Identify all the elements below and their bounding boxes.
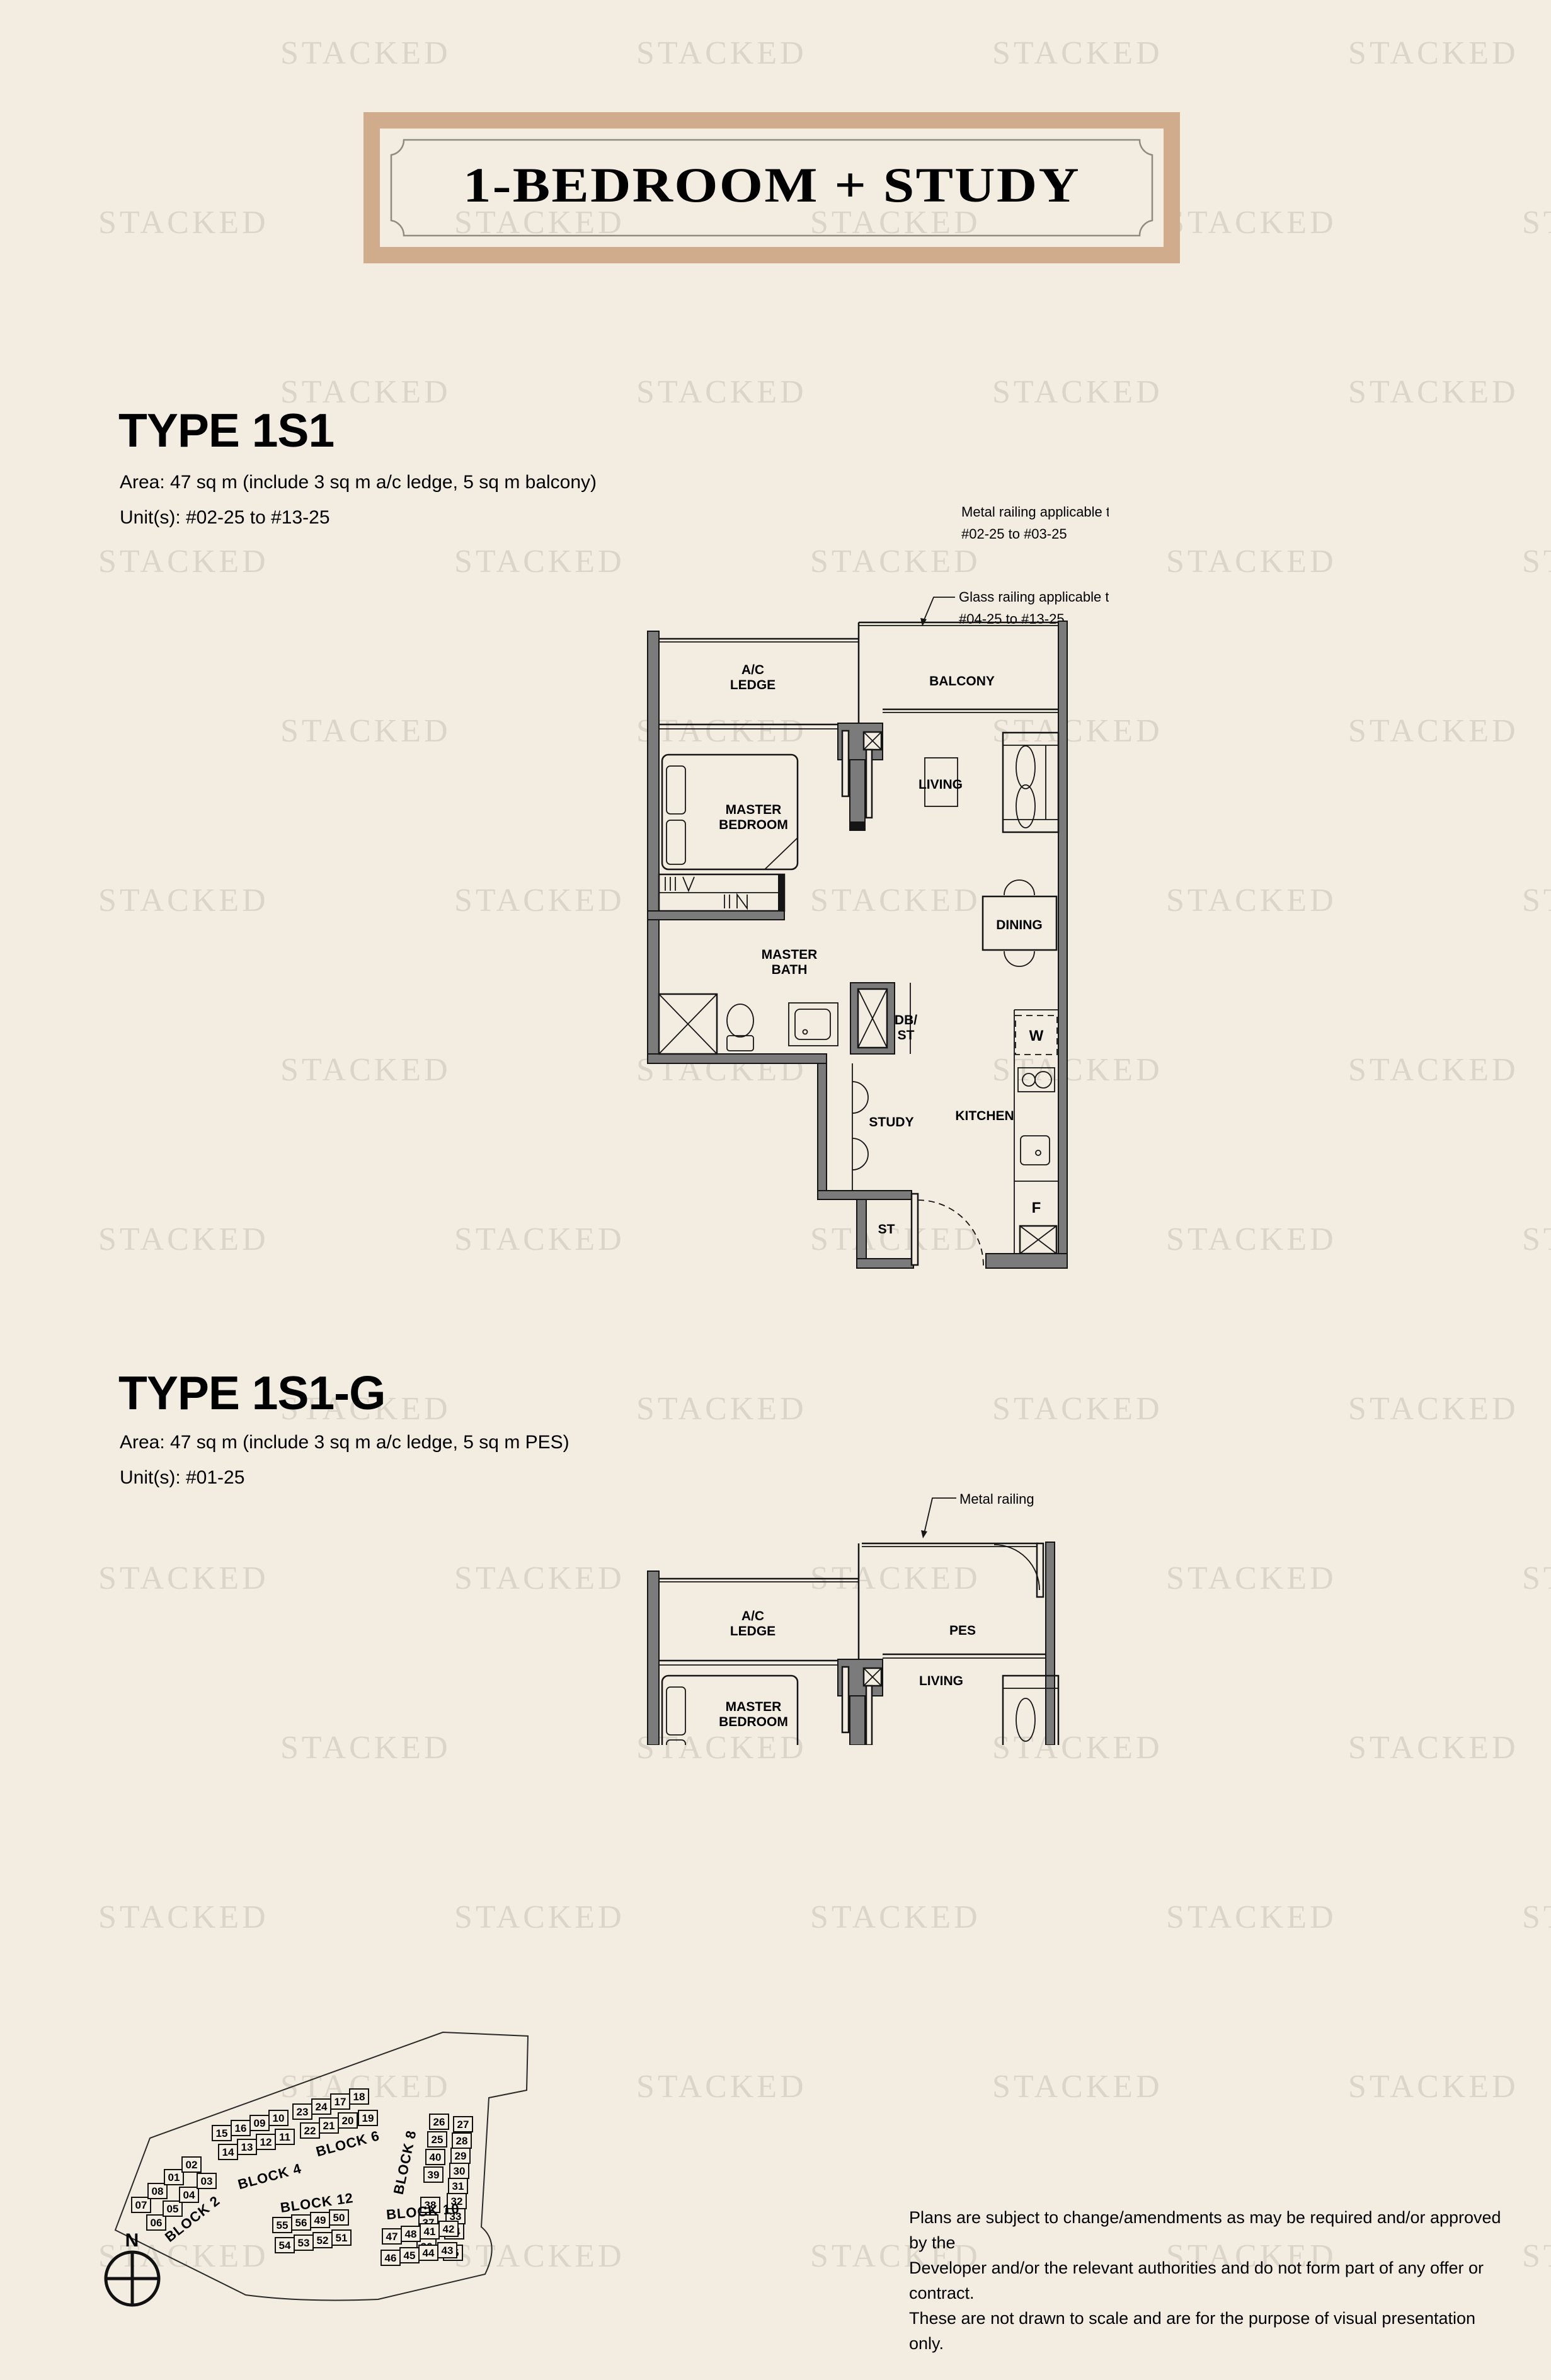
watermark: STACKED [636,2068,807,2105]
label-living: LIVING [919,777,963,792]
watermark: STACKED [1522,1560,1551,1597]
sofa-cushion-g [1016,1698,1035,1741]
compass-label: N [125,2230,140,2251]
watermark: STACKED [454,1560,625,1597]
site-plan: N 07 08 01 02 06 05 04 03 BLOCK 2 15 16 … [88,2003,567,2356]
svg-text:43: 43 [442,2245,454,2257]
wall-study-left [818,1063,827,1199]
study-chair-1 [852,1082,868,1113]
wall-end-cap [850,821,865,830]
watermark: STACKED [1166,1560,1337,1597]
note-glass-railing: Glass railing applicable to#04-25 to #13… [959,589,1109,627]
svg-text:41: 41 [424,2226,436,2238]
watermark: STACKED [98,1899,269,1936]
wall-left [648,631,659,1063]
toilet-bowl [727,1004,753,1037]
svg-text:26: 26 [433,2116,445,2128]
site-block-12: 55 56 49 50 54 53 52 51 BLOCK 12 [273,2190,355,2253]
label-kitchen: KITCHEN [955,1109,1014,1123]
watermark: STACKED [1348,35,1519,72]
disclaimer-line-1: Plans are subject to change/amendments a… [909,2205,1514,2255]
site-block-10: 47 48 41 42 46 45 44 43 BLOCK 10 [381,2200,461,2265]
block-4-label: BLOCK 4 [236,2160,304,2192]
wall-bath-bottom [648,1054,827,1063]
svg-text:08: 08 [152,2185,164,2197]
watermark: STACKED [454,1221,625,1258]
wardrobe-end [778,874,784,911]
site-block-4: 15 16 09 10 14 13 12 11 BLOCK 4 [212,2110,303,2192]
svg-text:27: 27 [457,2119,469,2131]
watermark: STACKED [98,882,269,919]
watermark: STACKED [992,1390,1163,1427]
entry-door-leaf [912,1194,918,1265]
svg-text:40: 40 [430,2151,442,2163]
floor-plan-1s1g: Metal railing A/CLEDGE PES MASTERBED [630,1468,1109,1745]
wall-kitchen-bottom [986,1254,1067,1268]
sliding-door-panel-g1 [842,1667,849,1732]
toilet-tank [727,1036,753,1051]
kitchen-sink-drain [1036,1150,1041,1155]
watermark: STACKED [1348,1729,1519,1766]
disclaimer-line-3: These are not drawn to scale and are for… [909,2306,1514,2356]
type-1s1-units: Unit(s): #02-25 to #13-25 [120,500,597,535]
blanket-fold [765,838,798,869]
watermark: STACKED [1522,2238,1551,2275]
label-dining: DINING [996,918,1043,932]
sofa-cushion-2 [1016,785,1035,828]
watermark: STACKED [1166,882,1337,919]
watermark: STACKED [454,882,625,919]
watermark: STACKED [1348,374,1519,411]
svg-text:51: 51 [336,2232,348,2244]
pillow-g2 [667,1740,685,1745]
site-block-2: 07 08 01 02 06 05 04 03 BLOCK 2 [132,2157,223,2245]
watermark: STACKED [98,1560,269,1597]
type-1s1-meta: Area: 47 sq m (include 3 sq m a/c ledge,… [120,465,597,535]
svg-text:25: 25 [432,2134,444,2146]
watermark: STACKED [1166,1899,1337,1936]
svg-text:21: 21 [323,2120,335,2132]
svg-text:04: 04 [183,2189,195,2201]
type-1s1-heading: TYPE 1S1 [118,403,334,457]
basin [795,1009,830,1039]
watermark: STACKED [280,1051,451,1089]
page: STACKEDSTACKEDSTACKEDSTACKEDSTACKEDSTACK… [0,0,1551,2380]
type-1s1g-units: Unit(s): #01-25 [120,1460,569,1496]
floor-plan-1s1: Metal railing applicable to#02-25 to #03… [630,466,1109,1279]
svg-text:14: 14 [222,2146,234,2158]
svg-text:29: 29 [455,2150,467,2162]
watermark: STACKED [98,204,269,241]
svg-text:50: 50 [333,2212,345,2224]
watermark: STACKED [1166,204,1337,241]
svg-text:16: 16 [235,2122,247,2134]
type-1s1g-heading: TYPE 1S1-G [118,1366,385,1420]
sofa [1003,733,1058,832]
type-1s1g-meta: Area: 47 sq m (include 3 sq m a/c ledge,… [120,1425,569,1496]
svg-text:47: 47 [386,2231,398,2243]
watermark: STACKED [454,543,625,580]
pillow-1 [667,766,685,814]
watermark: STACKED [1522,1899,1551,1936]
pes-gate-leaf [1037,1543,1043,1597]
pes-gate-swing [994,1545,1039,1590]
svg-text:01: 01 [168,2171,180,2183]
watermark: STACKED [992,2068,1163,2105]
watermark: STACKED [1522,1221,1551,1258]
svg-text:02: 02 [186,2159,198,2171]
sliding-door-panel-g2 [866,1686,872,1745]
wall-right-g [1046,1542,1055,1745]
dining-chair-bottom [1004,951,1034,966]
type-1s1-area: Area: 47 sq m (include 3 sq m a/c ledge,… [120,465,597,500]
svg-text:17: 17 [335,2096,346,2108]
svg-text:44: 44 [423,2247,435,2259]
svg-text:03: 03 [201,2175,213,2187]
label-balcony: BALCONY [929,674,995,689]
watermark: STACKED [1348,712,1519,750]
wall-right [1058,621,1067,1268]
svg-text:07: 07 [135,2199,147,2211]
note-metal-railing-g: Metal railing [959,1491,1034,1507]
label-study: STUDY [869,1115,913,1130]
svg-text:10: 10 [273,2112,285,2124]
wall-study-bottom [818,1191,912,1199]
svg-text:45: 45 [404,2250,416,2262]
block-8-label: BLOCK 8 [391,2129,420,2195]
svg-text:09: 09 [254,2117,266,2129]
svg-text:42: 42 [443,2223,455,2235]
label-master-bath: MASTERBATH [762,947,818,977]
wall-left-g [648,1571,659,1745]
metal-railing-leader [924,1498,956,1533]
label-db-st: DB/ST [895,1013,917,1043]
watermark: STACKED [1166,543,1337,580]
watermark: STACKED [98,543,269,580]
dining-chair-top [1004,880,1034,895]
svg-text:52: 52 [317,2234,329,2246]
watermark: STACKED [280,1729,451,1766]
svg-text:12: 12 [260,2136,272,2148]
hanger-v [683,877,694,891]
page-title: 1-BEDROOM + STUDY [463,157,1080,212]
hanger-n [737,895,747,908]
watermark: STACKED [1166,1221,1337,1258]
basin-drain [803,1030,808,1034]
watermark: STACKED [636,1390,807,1427]
svg-text:22: 22 [304,2125,316,2137]
svg-text:54: 54 [279,2240,291,2251]
disclaimer-line-2: Developer and/or the relevant authoritie… [909,2255,1514,2306]
pillow-g1 [667,1687,685,1735]
label-washer: W [1029,1027,1044,1044]
glass-railing-leader [924,597,955,621]
burner-1 [1022,1073,1035,1086]
watermark: STACKED [280,712,451,750]
wall-store-left [857,1199,866,1262]
label-pes: PES [949,1623,976,1638]
svg-text:11: 11 [279,2131,290,2143]
watermark: STACKED [992,374,1163,411]
watermark: STACKED [636,374,807,411]
svg-text:46: 46 [385,2252,397,2264]
sofa-cushion-1 [1016,746,1035,789]
title-banner: 1-BEDROOM + STUDY [363,112,1180,263]
watermark: STACKED [1522,543,1551,580]
watermark: STACKED [1522,204,1551,241]
svg-text:28: 28 [456,2135,468,2147]
svg-text:53: 53 [298,2237,310,2249]
watermark: STACKED [454,1899,625,1936]
svg-text:24: 24 [316,2101,328,2113]
kitchen-sink [1021,1136,1050,1165]
watermark: STACKED [636,35,807,72]
site-block-6: 23 24 17 18 22 21 20 19 BLOCK 6 [293,2089,381,2160]
burner-2 [1035,1072,1051,1088]
watermark: STACKED [1348,2068,1519,2105]
svg-text:48: 48 [405,2228,417,2240]
svg-text:13: 13 [241,2141,253,2153]
label-ac-ledge: A/CLEDGE [730,663,775,692]
svg-text:20: 20 [342,2115,354,2127]
entry-door-swing [918,1200,983,1266]
svg-text:49: 49 [314,2214,326,2226]
sliding-door-panel-2 [866,750,872,818]
stove [1018,1068,1055,1092]
label-master-bedroom: MASTERBEDROOM [719,803,788,832]
svg-text:56: 56 [295,2217,307,2229]
label-fridge: F [1032,1199,1041,1216]
pillow-2 [667,820,685,864]
svg-text:06: 06 [151,2217,163,2229]
watermark: STACKED [810,1899,981,1936]
note-metal-railing: Metal railing applicable to#02-25 to #03… [961,504,1109,542]
svg-text:55: 55 [277,2219,289,2231]
watermark: STACKED [1348,1051,1519,1089]
label-ac-ledge-g: A/CLEDGE [730,1609,775,1639]
watermark: STACKED [992,35,1163,72]
wall-bedroom-bath [648,911,784,920]
svg-text:05: 05 [167,2203,179,2215]
wall-store-bottom [857,1259,913,1268]
svg-text:31: 31 [452,2180,464,2192]
label-master-bedroom-g: MASTERBEDROOM [719,1700,788,1729]
watermark: STACKED [1348,1390,1519,1427]
svg-text:39: 39 [428,2169,440,2181]
svg-text:15: 15 [216,2127,228,2139]
leader-arrowhead-g [921,1530,927,1538]
watermark: STACKED [1522,882,1551,919]
watermark: STACKED [98,1221,269,1258]
disclaimer: Plans are subject to change/amendments a… [909,2205,1514,2356]
label-store: ST [878,1222,895,1237]
svg-text:30: 30 [454,2165,466,2177]
svg-text:18: 18 [353,2091,365,2103]
svg-text:23: 23 [297,2106,309,2118]
study-chair-2 [852,1138,868,1170]
type-1s1g-area: Area: 47 sq m (include 3 sq m a/c ledge,… [120,1425,569,1460]
sliding-door-panel-1 [842,731,849,796]
svg-text:19: 19 [362,2112,374,2124]
wall-bedroom-living-g [850,1696,865,1745]
wall-bedroom-living [850,760,865,830]
compass: N [105,2230,160,2306]
watermark: STACKED [280,35,451,72]
label-living-g: LIVING [919,1674,963,1688]
